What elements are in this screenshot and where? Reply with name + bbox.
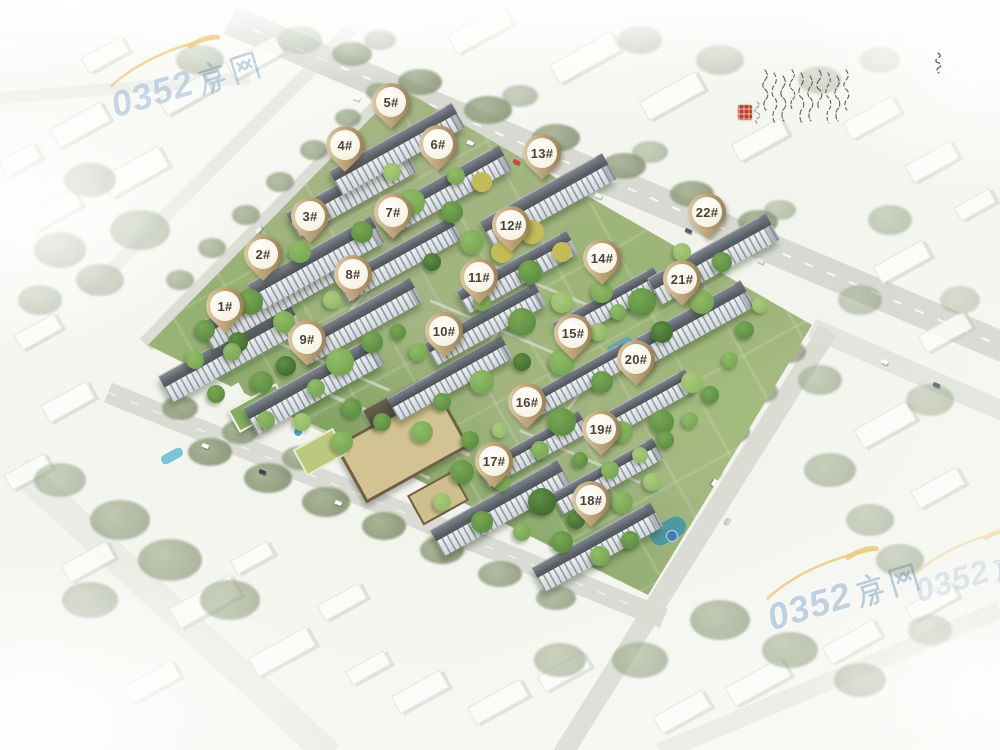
pin-icon: 4# xyxy=(318,118,372,172)
marker-label: 2# xyxy=(255,248,270,261)
marker-label: 8# xyxy=(345,268,360,281)
marker-label: 9# xyxy=(299,333,314,346)
marker-label: 1# xyxy=(217,300,232,313)
pin-face: 15# xyxy=(558,318,588,348)
building-marker-6[interactable]: 6# xyxy=(414,123,462,181)
aerial-masterplan-rendering: 1#2#3#4#5#6#7#8#9#10#11#12#13#14#15#16#1… xyxy=(0,0,1000,750)
marker-label: 22# xyxy=(696,206,719,219)
pin-face: 18# xyxy=(576,485,606,515)
building-marker-8[interactable]: 8# xyxy=(329,253,377,311)
marker-label: 12# xyxy=(500,219,523,232)
marker-label: 21# xyxy=(671,273,694,286)
building-marker-22[interactable]: 22# xyxy=(683,191,731,249)
marker-label: 3# xyxy=(302,210,317,223)
building-markers-layer: 1#2#3#4#5#6#7#8#9#10#11#12#13#14#15#16#1… xyxy=(0,0,1000,750)
building-marker-21[interactable]: 21# xyxy=(658,258,706,316)
pin-face: 2# xyxy=(248,239,278,269)
pin-face: 21# xyxy=(667,264,697,294)
pin-icon: 8# xyxy=(326,247,380,301)
marker-label: 16# xyxy=(516,396,539,409)
pin-face: 5# xyxy=(376,87,406,117)
pin-icon: 14# xyxy=(575,231,629,285)
pin-icon: 2# xyxy=(236,227,290,281)
pin-face: 14# xyxy=(587,243,617,273)
marker-label: 6# xyxy=(430,138,445,151)
building-marker-13[interactable]: 13# xyxy=(518,132,566,190)
building-marker-17[interactable]: 17# xyxy=(470,440,518,498)
pin-face: 12# xyxy=(496,210,526,240)
building-marker-9[interactable]: 9# xyxy=(283,318,331,376)
pin-icon: 5# xyxy=(364,75,418,129)
pin-icon: 16# xyxy=(500,375,554,429)
pin-face: 16# xyxy=(512,387,542,417)
pin-face: 8# xyxy=(338,259,368,289)
pin-icon: 20# xyxy=(609,332,663,386)
pin-icon: 3# xyxy=(283,189,337,243)
pin-icon: 9# xyxy=(280,312,334,366)
pin-face: 3# xyxy=(295,201,325,231)
pin-icon: 22# xyxy=(680,185,734,239)
building-marker-19[interactable]: 19# xyxy=(577,408,625,466)
building-marker-1[interactable]: 1# xyxy=(201,285,249,343)
marker-label: 14# xyxy=(591,252,614,265)
pin-face: 11# xyxy=(464,262,494,292)
building-marker-12[interactable]: 12# xyxy=(487,204,535,262)
pin-face: 1# xyxy=(210,291,240,321)
pin-icon: 7# xyxy=(366,185,420,239)
pin-face: 9# xyxy=(292,324,322,354)
marker-label: 4# xyxy=(337,139,352,152)
pin-face: 10# xyxy=(429,316,459,346)
building-marker-3[interactable]: 3# xyxy=(286,195,334,253)
building-marker-18[interactable]: 18# xyxy=(567,479,615,537)
marker-label: 18# xyxy=(580,494,603,507)
marker-label: 17# xyxy=(483,455,506,468)
pin-face: 7# xyxy=(378,197,408,227)
marker-label: 19# xyxy=(590,423,613,436)
marker-label: 15# xyxy=(562,327,585,340)
building-marker-20[interactable]: 20# xyxy=(612,338,660,396)
building-marker-16[interactable]: 16# xyxy=(503,381,551,439)
marker-label: 13# xyxy=(531,147,554,160)
building-marker-5[interactable]: 5# xyxy=(367,81,415,139)
pin-face: 4# xyxy=(330,130,360,160)
pin-face: 17# xyxy=(479,446,509,476)
pin-face: 6# xyxy=(423,129,453,159)
pin-icon: 21# xyxy=(655,252,709,306)
building-marker-14[interactable]: 14# xyxy=(578,237,626,295)
marker-label: 5# xyxy=(383,96,398,109)
pin-icon: 17# xyxy=(467,434,521,488)
marker-label: 7# xyxy=(385,206,400,219)
pin-icon: 13# xyxy=(515,126,569,180)
pin-face: 20# xyxy=(621,344,651,374)
pin-icon: 6# xyxy=(411,117,465,171)
pin-icon: 15# xyxy=(546,306,600,360)
building-marker-10[interactable]: 10# xyxy=(420,310,468,368)
building-marker-2[interactable]: 2# xyxy=(239,233,287,291)
pin-face: 22# xyxy=(692,197,722,227)
building-marker-11[interactable]: 11# xyxy=(455,256,503,314)
pin-icon: 19# xyxy=(574,402,628,456)
marker-label: 20# xyxy=(625,353,648,366)
marker-label: 11# xyxy=(468,271,490,284)
building-marker-7[interactable]: 7# xyxy=(369,191,417,249)
pin-icon: 12# xyxy=(484,198,538,252)
pin-face: 13# xyxy=(527,138,557,168)
marker-label: 10# xyxy=(433,325,456,338)
pin-face: 19# xyxy=(586,414,616,444)
building-marker-15[interactable]: 15# xyxy=(549,312,597,370)
pin-icon: 18# xyxy=(564,473,618,527)
building-marker-4[interactable]: 4# xyxy=(321,124,369,182)
